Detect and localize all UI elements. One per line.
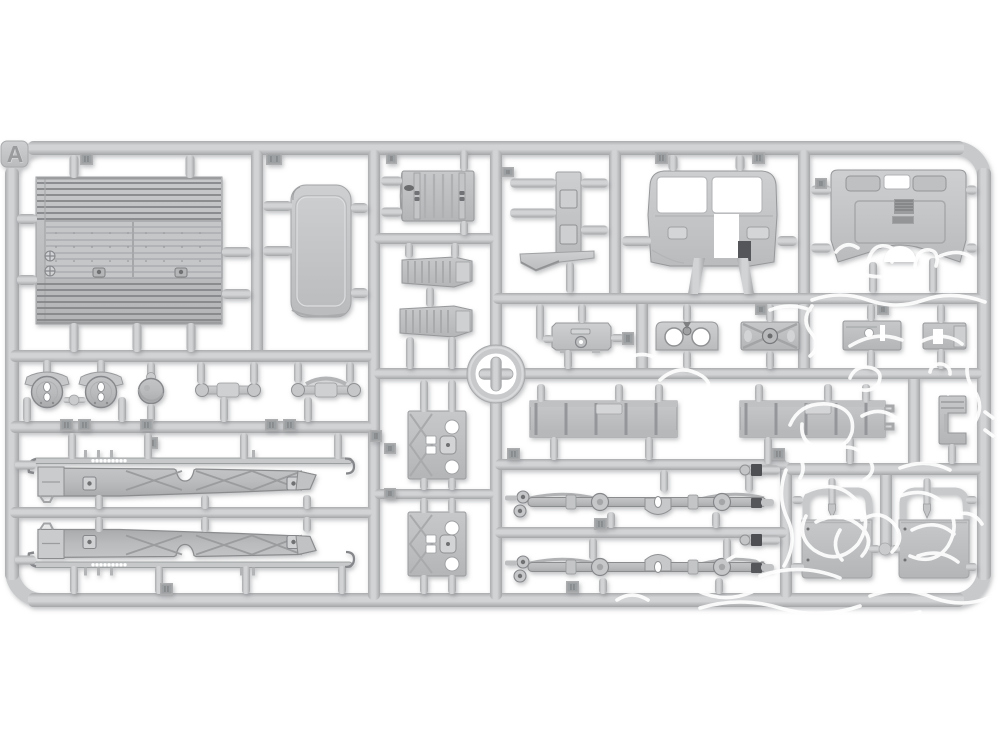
svg-text:A: A [7,141,24,167]
